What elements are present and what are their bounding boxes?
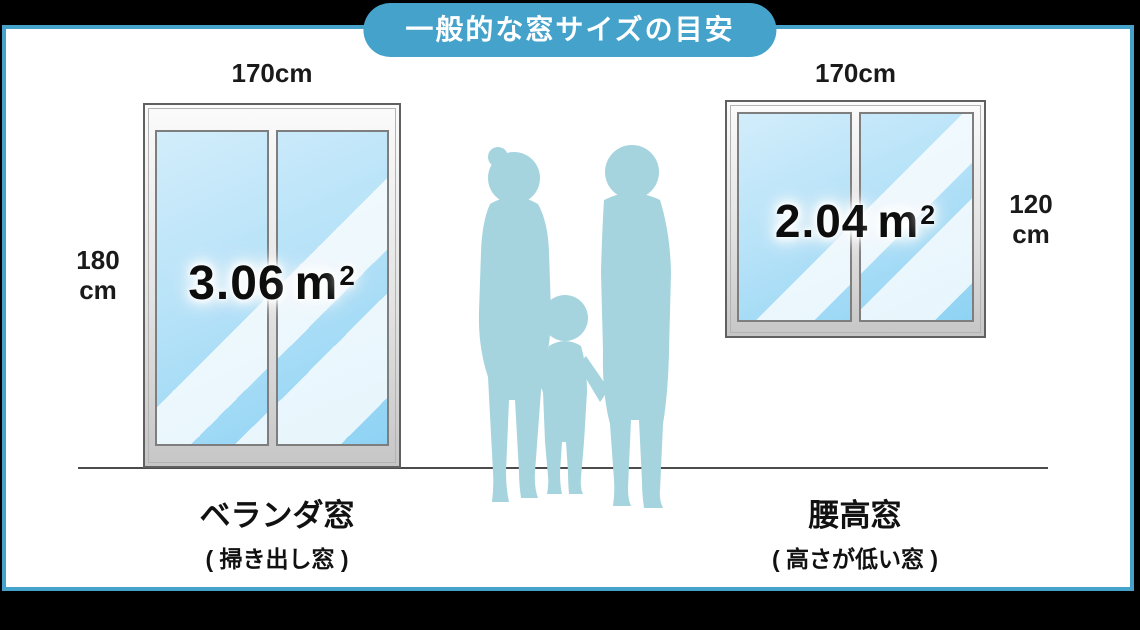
waist-window-width-label: 170cm bbox=[725, 58, 986, 89]
waist-window-caption: 腰高窓 ( 高さが低い窓 ) bbox=[700, 490, 1010, 574]
balcony-window-caption: ベランダ窓 ( 掃き出し窓 ) bbox=[122, 490, 432, 574]
waist-window-height-label: 120 cm bbox=[998, 190, 1064, 250]
family-silhouette bbox=[452, 142, 696, 508]
family-silhouette-shapes bbox=[479, 145, 671, 508]
balcony-window-area-label: 3.06m2 bbox=[143, 256, 401, 311]
father-figure bbox=[578, 145, 671, 508]
waist-area-value: 2.04 bbox=[775, 195, 869, 247]
balcony-area-unit: m bbox=[295, 257, 339, 310]
page-title: 一般的な窓サイズの目安 bbox=[405, 14, 734, 45]
waist-height-value: 120 bbox=[998, 190, 1064, 220]
balcony-area-value: 3.06 bbox=[188, 257, 285, 310]
waist-window-name: 腰高窓 bbox=[700, 490, 1010, 535]
balcony-window-name: ベランダ窓 bbox=[122, 490, 432, 535]
child-figure bbox=[542, 295, 588, 494]
title-badge: 一般的な窓サイズの目安 bbox=[363, 3, 776, 57]
balcony-height-unit: cm bbox=[66, 276, 130, 306]
balcony-height-value: 180 bbox=[66, 246, 130, 276]
balcony-area-exponent: 2 bbox=[339, 260, 355, 291]
waist-height-unit: cm bbox=[998, 220, 1064, 250]
waist-area-unit: m bbox=[877, 195, 919, 247]
balcony-window-width-label: 170cm bbox=[143, 58, 401, 89]
waist-area-exponent: 2 bbox=[920, 200, 936, 230]
balcony-window-subname: ( 掃き出し窓 ) bbox=[122, 540, 432, 574]
waist-window-area-label: 2.04m2 bbox=[725, 194, 986, 248]
balcony-window-height-label: 180 cm bbox=[66, 246, 130, 306]
waist-window-subname: ( 高さが低い窓 ) bbox=[700, 540, 1010, 574]
